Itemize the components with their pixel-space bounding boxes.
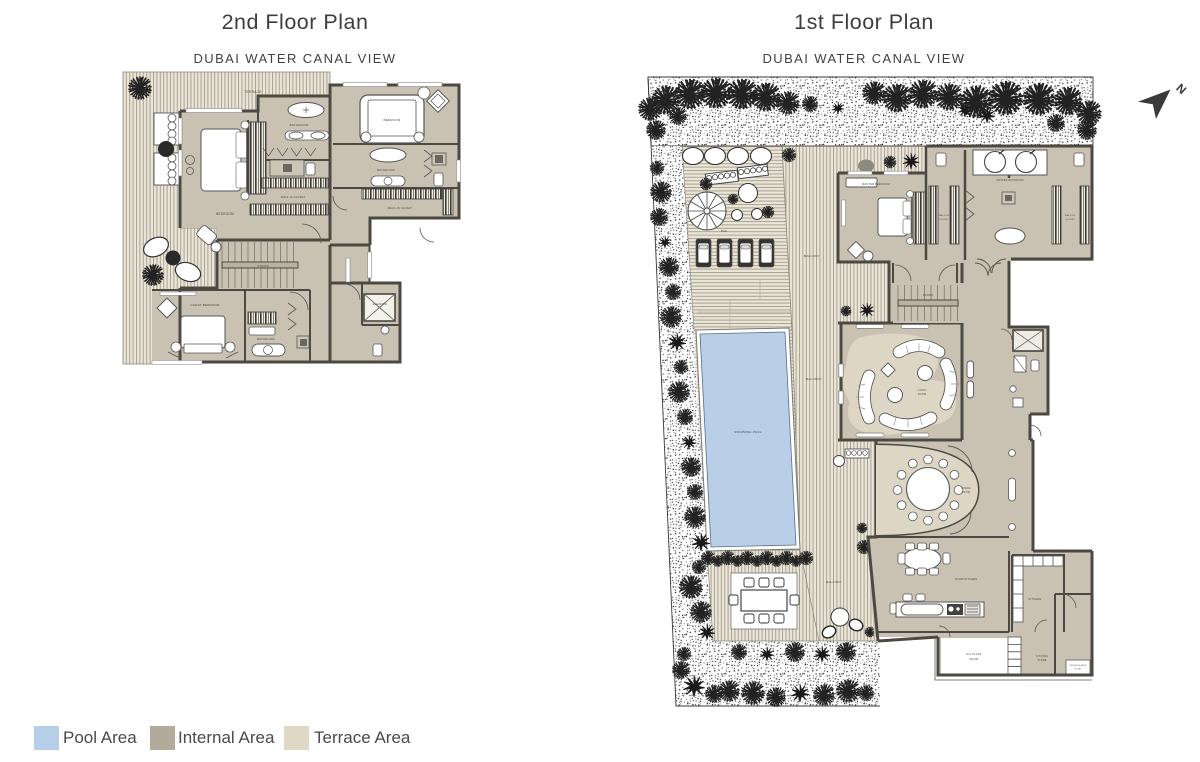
svg-text:BALCONY: BALCONY [826,580,842,584]
svg-text:DUBAI WATER CANAL VIEW: DUBAI WATER CANAL VIEW [763,51,966,66]
svg-text:N: N [1173,81,1189,97]
svg-text:STAIRS: STAIRS [257,264,269,268]
svg-text:WALK-IN: WALK-IN [1065,214,1076,217]
svg-text:ROOM: ROOM [918,393,926,396]
svg-text:MASTER BATHROOM: MASTER BATHROOM [996,179,1023,182]
svg-text:BAR: BAR [721,229,727,233]
svg-text:BATHROOM: BATHROOM [257,337,275,341]
svg-text:A/C PLANT: A/C PLANT [966,652,981,656]
svg-text:BALCONY: BALCONY [804,254,820,258]
svg-text:TERRACE: TERRACE [244,90,262,94]
svg-text:1st Floor Plan: 1st Floor Plan [794,10,934,34]
svg-text:GUEST BEDROOM: GUEST BEDROOM [190,303,220,307]
svg-text:BEDROOM: BEDROOM [216,212,234,216]
svg-text:LIVING: LIVING [917,389,926,392]
svg-text:KITCHEN: KITCHEN [1029,597,1042,601]
svg-text:SHOW KITCHEN: SHOW KITCHEN [955,577,978,581]
svg-text:DINING: DINING [961,487,971,490]
svg-text:DRIVER&GUARD: DRIVER&GUARD [1070,664,1087,667]
svg-text:SWIMMING POOL: SWIMMING POOL [734,430,762,434]
svg-text:ELEVATOR: ELEVATOR [373,303,387,306]
svg-text:BATHROOM: BATHROOM [290,123,309,127]
svg-text:Pool Area: Pool Area [63,728,137,747]
svg-text:Internal Area: Internal Area [178,728,275,747]
svg-text:STAIRS: STAIRS [923,293,933,297]
svg-text:MASTER BEDROOM: MASTER BEDROOM [862,182,890,186]
svg-text:KITCHEN: KITCHEN [1036,655,1048,658]
svg-text:WALK-IN: WALK-IN [939,214,950,217]
svg-text:BALCONY: BALCONY [806,377,822,381]
svg-text:2nd Floor Plan: 2nd Floor Plan [222,10,369,34]
svg-text:STORE: STORE [1037,659,1046,662]
svg-text:CLOSET: CLOSET [939,219,949,221]
svg-text:CLOSET: CLOSET [1065,219,1075,221]
svg-text:TOILET: TOILET [1074,669,1082,671]
svg-text:ROOM: ROOM [962,491,970,494]
svg-text:DUBAI WATER CANAL VIEW: DUBAI WATER CANAL VIEW [194,51,397,66]
svg-text:Terrace Area: Terrace Area [314,728,411,747]
svg-text:BEDROOM: BEDROOM [384,118,401,122]
svg-text:WALK-IN CLOSET: WALK-IN CLOSET [388,206,413,210]
svg-text:ROOM: ROOM [970,657,979,661]
svg-text:WALK-IN CLOSET: WALK-IN CLOSET [281,195,306,199]
svg-text:BATHROOM: BATHROOM [377,168,395,172]
